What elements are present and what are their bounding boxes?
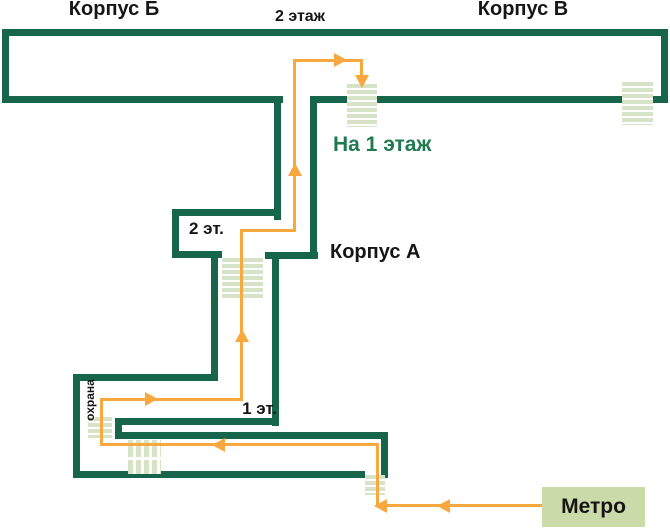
wall-link-corridor-west (274, 96, 281, 220)
stairs-icon-corpus-v-west (347, 84, 377, 127)
label-floor1-short: 1 эт. (180, 400, 277, 417)
stairs-icon-corpus-v-east (622, 82, 653, 125)
route-segment-stairs-up (240, 229, 243, 399)
route-segment-floor2 (240, 229, 296, 232)
route-segment-top-corridor (293, 59, 363, 62)
label-floor2: 2 этаж (250, 8, 350, 25)
metro-box-label: Метро (561, 495, 626, 519)
wall-outer-bottom (73, 471, 365, 478)
route-diagram: Корпус Б 2 этаж Корпус В На 1 этаж 2 эт.… (0, 0, 670, 529)
wall-top-corridor-bottom-west (2, 96, 283, 103)
route-arrowhead-icon-1 (437, 499, 450, 513)
wall-link-corridor-east (310, 96, 317, 259)
wall-top-corridor-right (661, 29, 668, 103)
wall-floor2-box-bottom-west (172, 251, 222, 258)
route-arrowhead-icon-8 (355, 75, 369, 88)
wall-passage-end-cap (381, 432, 388, 478)
label-security: охрана (77, 378, 103, 422)
route-arrowhead-icon-3 (212, 438, 225, 452)
route-segment-link-up (293, 59, 296, 232)
route-arrowhead-icon-4 (145, 392, 158, 406)
wall-divider-cap (115, 418, 122, 439)
route-segment-passage (100, 443, 379, 446)
route-arrowhead-icon-6 (288, 163, 302, 176)
route-arrowhead-icon-7 (334, 53, 347, 67)
route-segment-metro (377, 504, 543, 507)
stairs-icon-metro-exit (365, 475, 385, 495)
label-corpus-a: Корпус А (330, 243, 420, 262)
metro-box: Метро (542, 487, 645, 527)
label-corpus-v: Корпус В (448, 0, 598, 19)
wall-divider-lower (122, 432, 388, 439)
wall-divider-upper (115, 418, 279, 425)
wall-top-corridor-top (2, 29, 668, 36)
wall-stair-corridor-west (211, 258, 218, 381)
stairs-icon-passage-lower (128, 460, 161, 474)
wall-floor2-box-top (172, 209, 281, 216)
route-arrowhead-icon-2 (374, 499, 387, 513)
route-arrowhead-icon-5 (235, 329, 249, 342)
wall-top-corridor-left (2, 29, 9, 103)
label-to-floor1: На 1 этаж (333, 135, 431, 155)
label-corpus-b: Корпус Б (39, 0, 189, 19)
route-segment-exit-up (376, 444, 379, 507)
label-security-text: охрана (83, 379, 97, 421)
label-floor2-short: 2 эт. (189, 220, 224, 237)
